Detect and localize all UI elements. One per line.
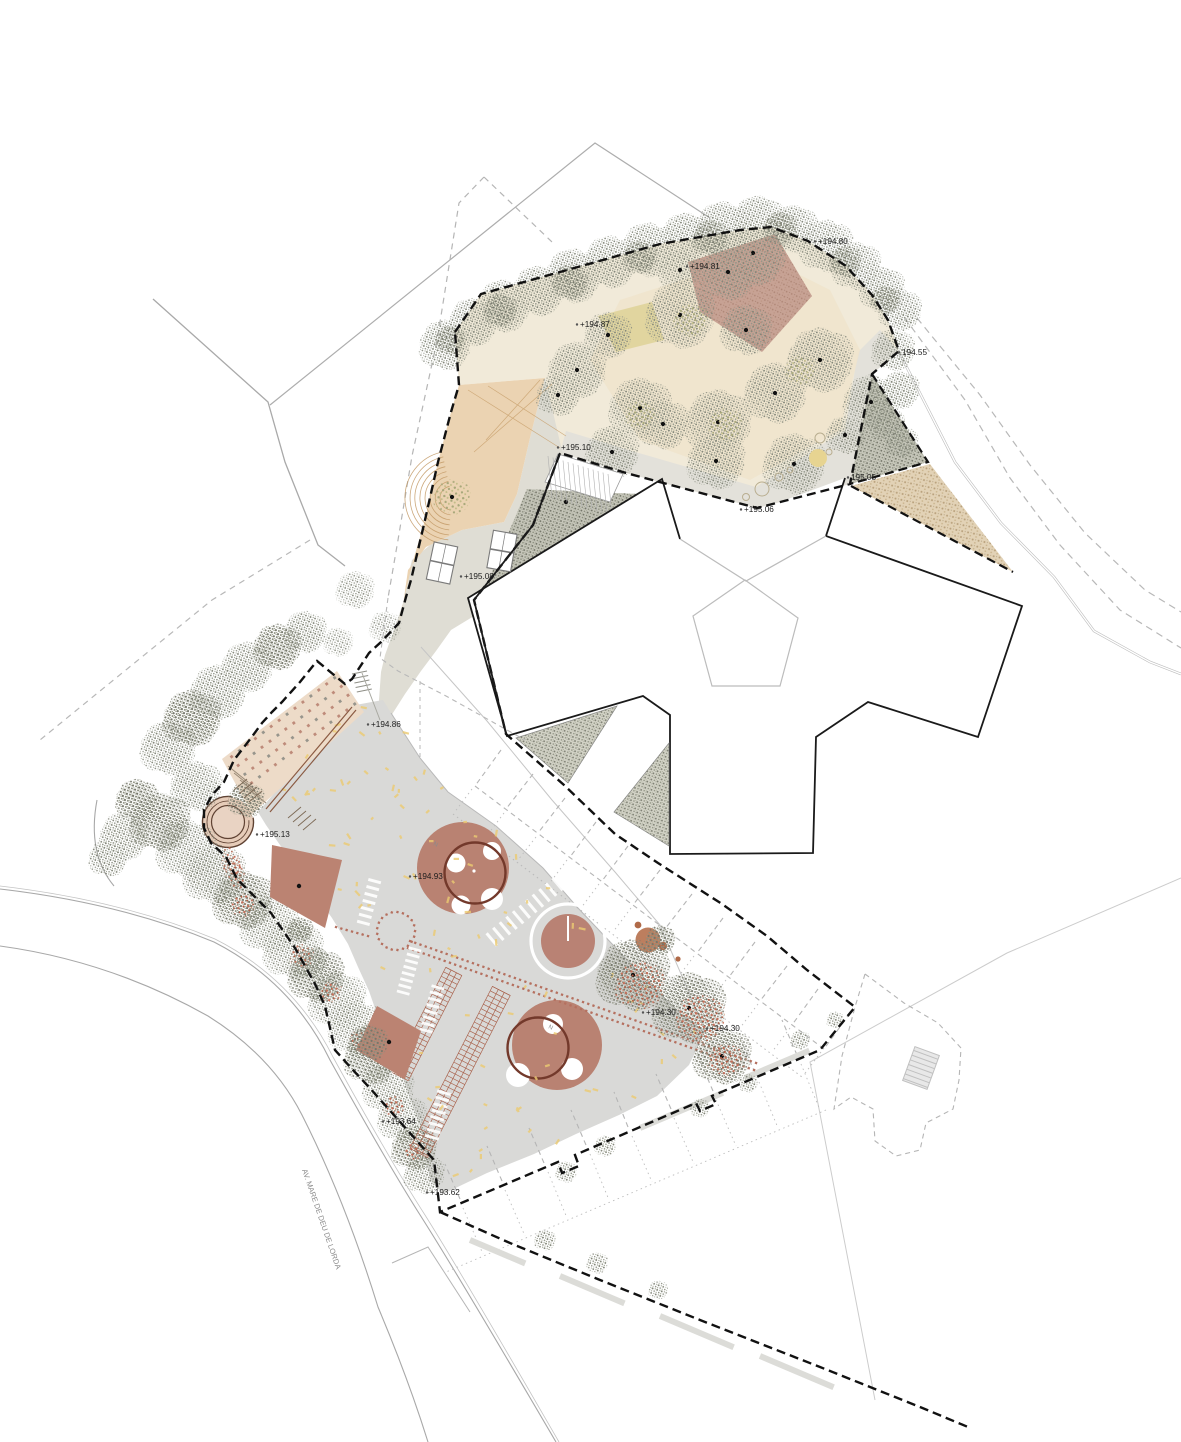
svg-text:+194.81: +194.81 (690, 262, 720, 271)
svg-text:+195.13: +195.13 (260, 830, 290, 839)
svg-text:195.05: 195.05 (851, 473, 876, 482)
svg-text:+195.10: +195.10 (561, 443, 591, 452)
svg-text:194.55: 194.55 (902, 348, 927, 357)
svg-text:+194.86: +194.86 (371, 720, 401, 729)
svg-text:+194.93: +194.93 (413, 872, 443, 881)
svg-text:+195.08: +195.08 (464, 572, 494, 581)
svg-text:+194.87: +194.87 (580, 320, 610, 329)
svg-text:+194.30: +194.30 (646, 1008, 676, 1017)
svg-text:+193.64: +193.64 (386, 1117, 416, 1126)
svg-text:+194.30: +194.30 (710, 1024, 740, 1033)
svg-text:+195.06: +195.06 (744, 505, 774, 514)
svg-text:+194.80: +194.80 (818, 237, 848, 246)
svg-text:+193.62: +193.62 (430, 1188, 460, 1197)
